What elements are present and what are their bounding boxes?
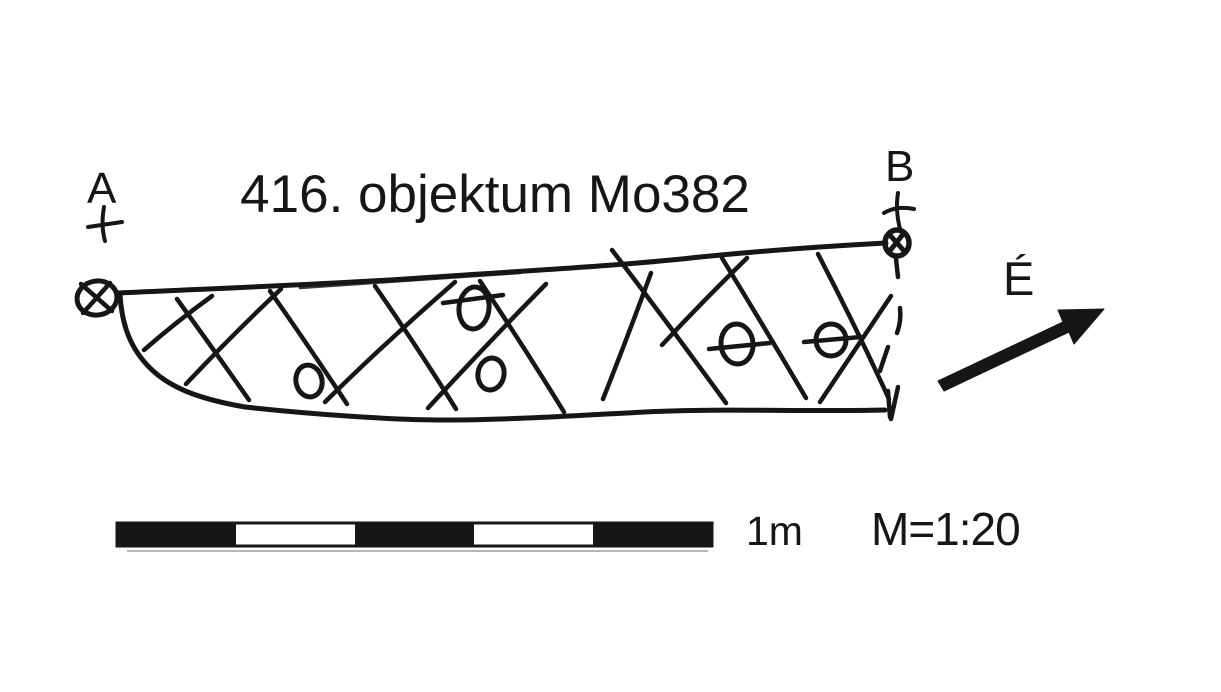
north-arrow-icon — [938, 309, 1104, 391]
scale-bar-segment-black — [355, 523, 474, 546]
survey-cross-b — [884, 193, 914, 229]
scale-length-label: 1m — [746, 508, 803, 554]
section-drawing-canvas: 416. objektum Mo382 A B É 1m M=1:20 — [0, 0, 1221, 692]
crossed-circle-b-icon — [885, 230, 909, 256]
scale-bar-segment-black — [117, 523, 236, 546]
north-label: É — [1003, 252, 1034, 305]
stone-marker — [709, 323, 770, 366]
datum-label-b: B — [885, 142, 914, 191]
stone-marker — [293, 363, 325, 400]
scale-ratio-label: M=1:20 — [871, 503, 1020, 555]
scale-bar — [117, 523, 712, 551]
stone-marker — [475, 356, 506, 392]
archaeological-section-sheet: 416. objektum Mo382 A B É 1m M=1:20 — [0, 0, 1221, 692]
section-title: 416. objektum Mo382 — [240, 165, 750, 224]
crossed-circle-a-icon — [75, 278, 119, 317]
stone-markers — [293, 286, 861, 400]
stone-marker — [443, 286, 503, 331]
datum-label-a: A — [87, 164, 117, 213]
scale-bar-segment-black — [593, 523, 712, 546]
